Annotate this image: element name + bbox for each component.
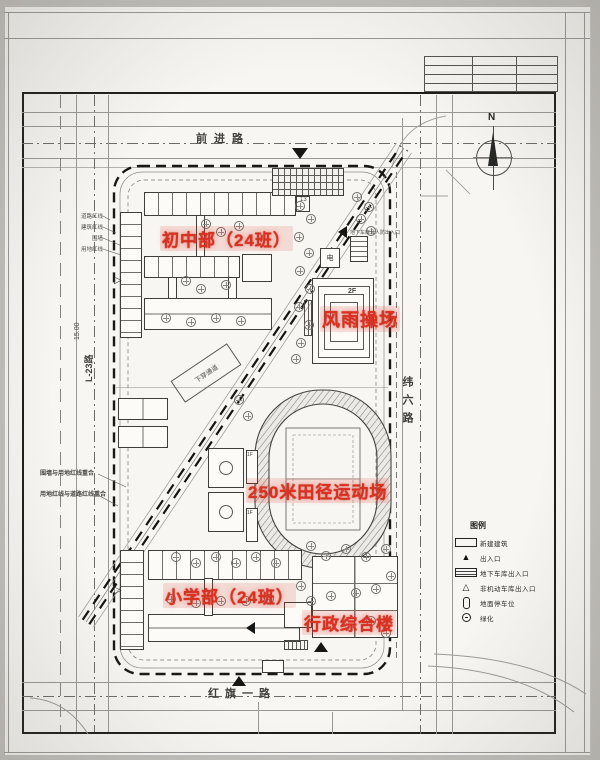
tree-icon: [236, 316, 246, 326]
note-left-2: 用地红线与道路红线重合: [40, 489, 106, 498]
road-label-north: 前进路: [196, 130, 250, 146]
legend: 图例 新建建筑 ▲ 出入口 地下车库出入口 △ 非机动车库出入口 地面停车位 绿…: [452, 520, 570, 625]
middle-school-west-slab: [120, 212, 142, 338]
label-admin: 行政综合楼: [302, 610, 396, 635]
label-primary-school: 小学部（24班）: [163, 583, 296, 608]
entrance-arrow-icon: [338, 226, 347, 238]
legend-row: 绿化: [452, 610, 570, 625]
tree-icon: [294, 302, 304, 312]
court-center-circle: [219, 461, 233, 475]
legend-label: 地面停车位: [480, 598, 515, 608]
legend-label: 非机动车库出入口: [480, 583, 536, 593]
note-garage-entry: 地下车库及人防出入口: [350, 229, 400, 236]
entrance-arrow-icon: [246, 622, 255, 634]
entrance-arrow-icon: [292, 148, 308, 159]
road-label-west: L-23路: [82, 354, 95, 382]
stand-floor-label: 1F: [247, 452, 253, 458]
note-building-redline: 建筑红线: [70, 223, 103, 231]
primary-school-west-slab: [120, 550, 144, 650]
tree-icon: [295, 266, 305, 276]
tree-icon: [352, 192, 362, 202]
tree-icon: [386, 571, 396, 581]
tree-icon: [306, 541, 316, 551]
tree-icon: [211, 552, 221, 562]
greening-icon: [452, 613, 480, 622]
bike-parking-strip: [284, 640, 308, 650]
garage-ramp: [350, 236, 368, 262]
gym-floor-label: 2F: [348, 288, 356, 295]
note-left-1: 围墙与用地红线重合: [40, 468, 94, 477]
legend-label: 出入口: [480, 553, 501, 563]
legend-label: 绿化: [480, 613, 494, 623]
tree-icon: [221, 280, 231, 290]
tree-icon: [351, 588, 361, 598]
garage-entrance-icon: [452, 568, 480, 577]
nonmotor-entrance-icon: ▷: [114, 276, 122, 286]
corridor: [168, 277, 177, 299]
tree-icon: [243, 411, 253, 421]
legend-label: 地下车库出入口: [480, 568, 529, 578]
middle-school-block: [242, 254, 272, 282]
note-site-redline: 用地红线: [70, 245, 103, 253]
tree-icon: [306, 596, 316, 606]
tree-icon: [306, 214, 316, 224]
label-track: 250米田径运动场: [246, 478, 389, 503]
road-label-south: 红旗一路: [208, 685, 276, 701]
tree-icon: [161, 313, 171, 323]
nonmotor-entrance-icon: ▷: [114, 586, 122, 596]
tree-icon: [291, 354, 301, 364]
tree-icon: [186, 317, 196, 327]
tree-icon: [361, 552, 371, 562]
underpass-label: 下穿通道: [192, 362, 219, 385]
tree-icon: [171, 552, 181, 562]
tree-icon: [234, 395, 244, 405]
gatehouse: [262, 660, 284, 673]
gym-steps: [304, 300, 312, 336]
legend-row: △ 非机动车库出入口: [452, 580, 570, 595]
electric-room: 电: [320, 248, 340, 268]
tree-icon: [296, 338, 306, 348]
legend-row: 地下车库出入口: [452, 565, 570, 580]
legend-row: 地面停车位: [452, 595, 570, 610]
tree-icon: [305, 284, 315, 294]
note-wall: 围墙: [70, 234, 103, 242]
tree-icon: [321, 551, 331, 561]
tree-icon: [295, 201, 305, 211]
legend-row: ▲ 出入口: [452, 550, 570, 565]
legend-row: 新建建筑: [452, 535, 570, 550]
site-plan-scan: 电 2F 1F 1F 下穿通道 13 ▷ ▷ 初中部（24班） 风雨操场 250…: [0, 0, 600, 760]
tree-icon: [181, 276, 191, 286]
entrance-icon: ▲: [452, 553, 480, 562]
legend-title: 图例: [470, 520, 570, 531]
tree-icon: [356, 214, 366, 224]
tree-icon: [251, 552, 261, 562]
legend-label: 新建建筑: [480, 538, 508, 548]
tree-icon: [304, 248, 314, 258]
note-road-redline: 道路红线: [70, 212, 103, 220]
ground-parking-area: [272, 168, 344, 196]
nonmotor-entrance-icon: △: [452, 583, 480, 592]
tree-icon: [304, 320, 314, 330]
label-middle-school: 初中部（24班）: [160, 226, 293, 251]
new-building-icon: [452, 538, 480, 547]
tree-icon: [381, 544, 391, 554]
tree-icon: [196, 284, 206, 294]
road-label-east: 纬六路: [399, 376, 415, 430]
tree-icon: [231, 558, 241, 568]
label-gym: 风雨操场: [320, 306, 400, 332]
stand-floor-label: 1F: [247, 510, 253, 516]
tree-icon: [191, 558, 201, 568]
entrance-arrow-icon: [314, 642, 328, 652]
electric-room-label: 电: [327, 255, 334, 262]
tree-icon: [211, 313, 221, 323]
tree-icon: [326, 591, 336, 601]
primary-school-wing-2: [148, 614, 300, 642]
tree-icon: [341, 544, 351, 554]
tree-icon: [371, 584, 381, 594]
volleyball-court-2: [118, 426, 168, 448]
tree-icon: [271, 558, 281, 568]
court-center-circle: [219, 505, 233, 519]
volleyball-court-1: [118, 398, 168, 420]
north-letter: N: [488, 112, 495, 123]
dimension-west: 15.00: [74, 322, 81, 340]
north-arrow-icon: N: [470, 112, 518, 196]
surface-parking-icon: [452, 597, 480, 609]
middle-school-wing-2: [144, 256, 240, 278]
tree-icon: [294, 232, 304, 242]
tree-icon: [364, 202, 374, 212]
tree-icon: [296, 581, 306, 591]
